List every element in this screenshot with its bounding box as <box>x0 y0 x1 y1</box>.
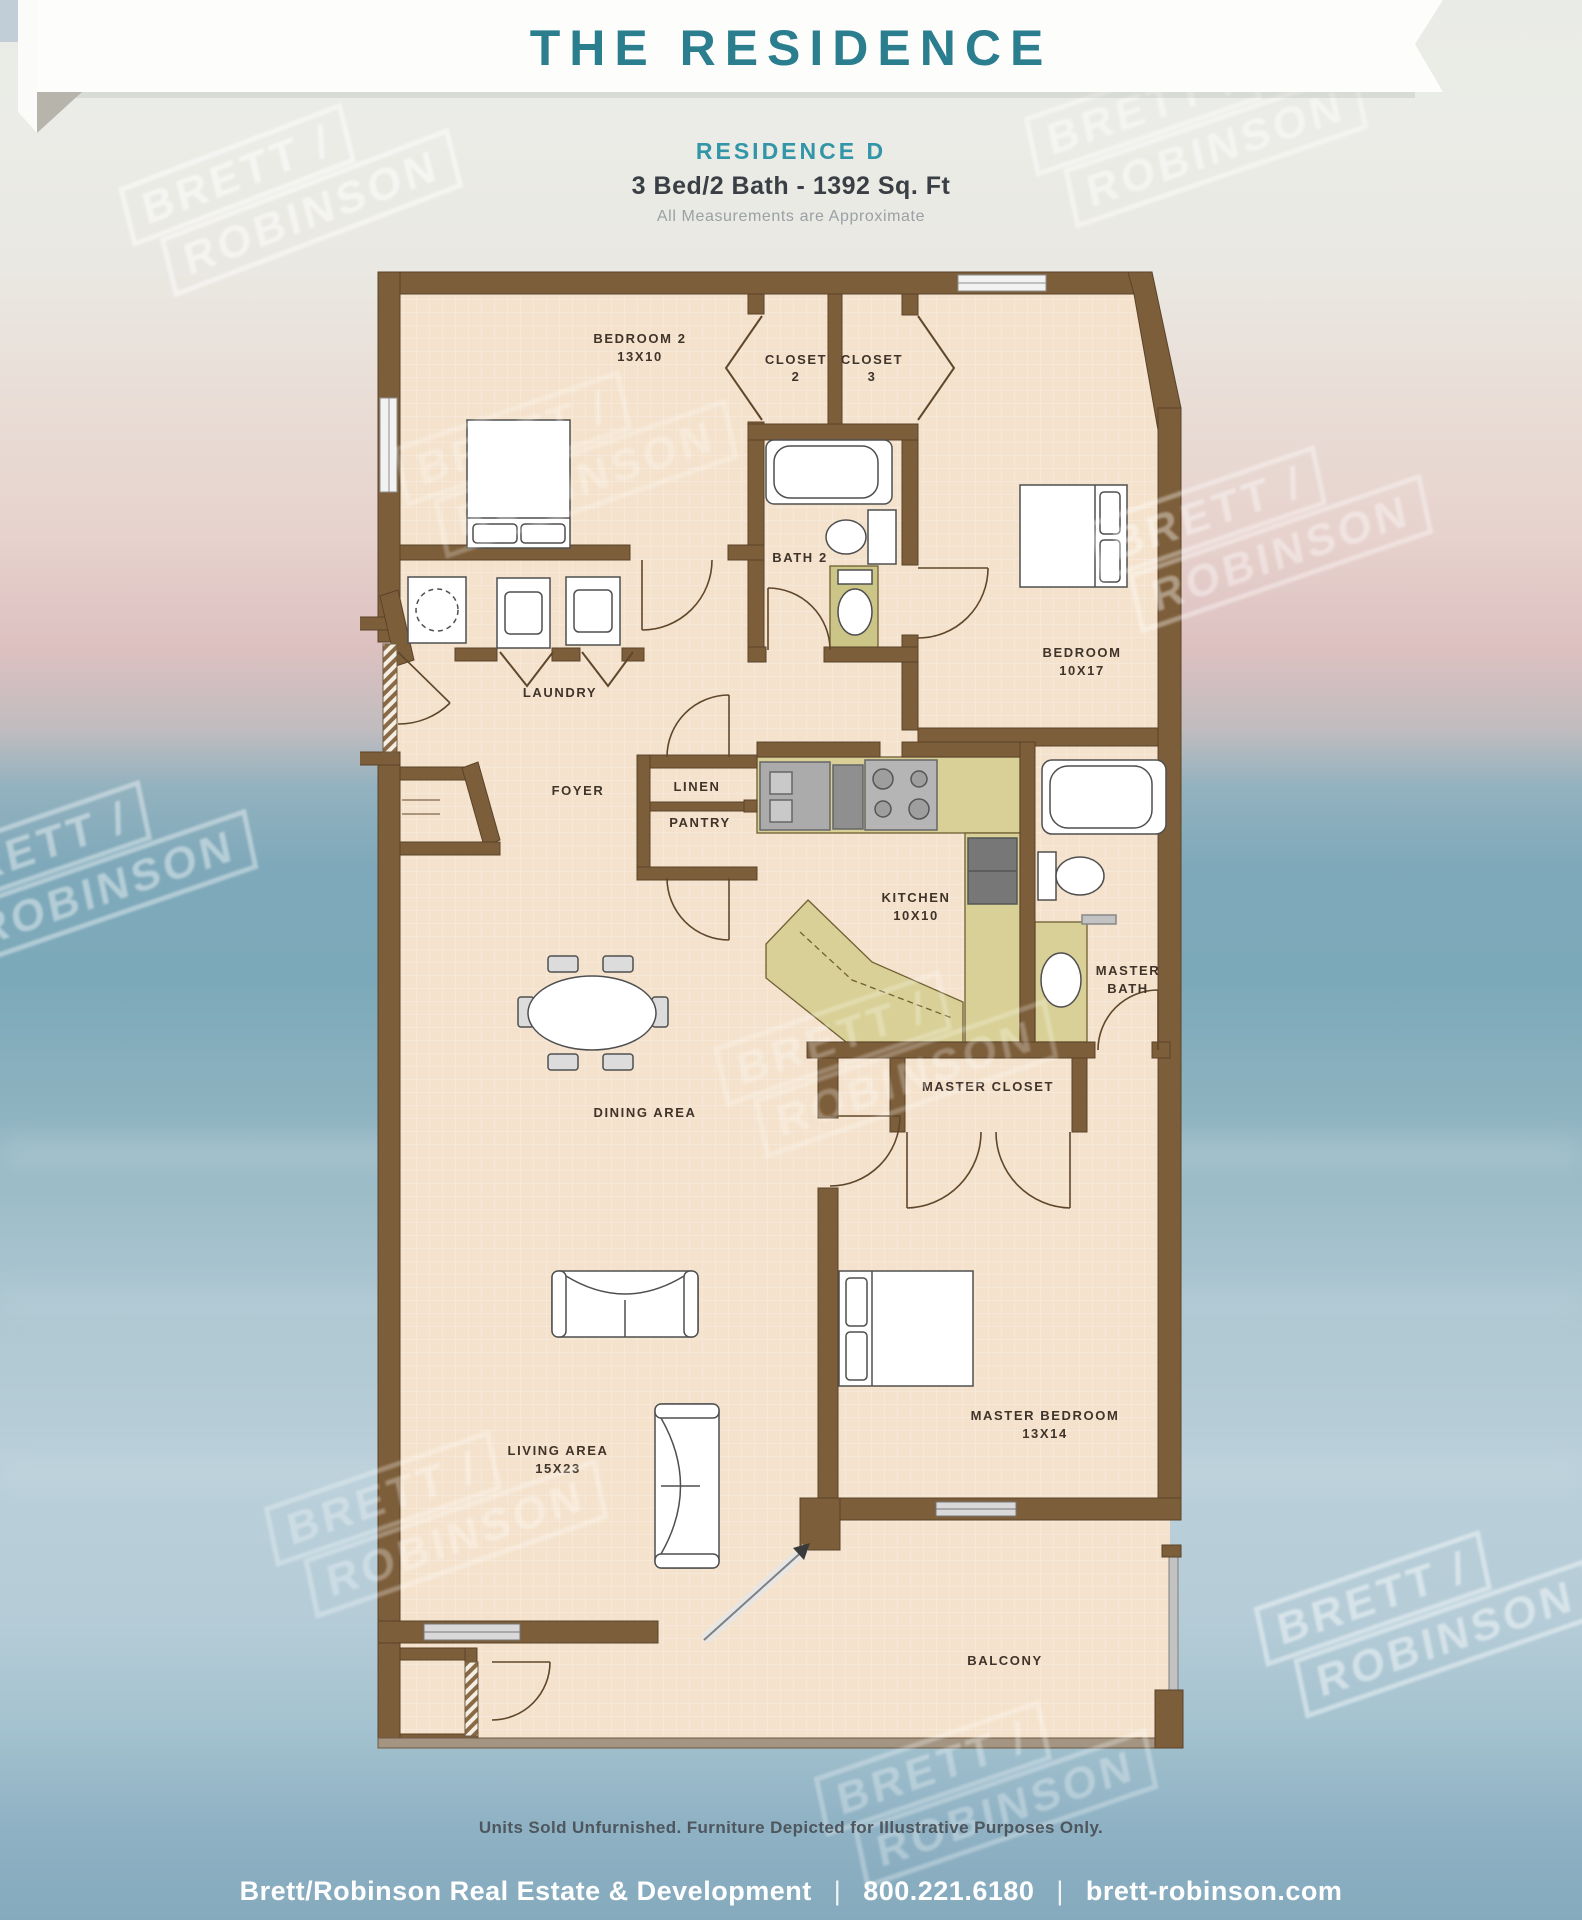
label-balcony: BALCONY <box>967 1653 1042 1668</box>
label-linen: LINEN <box>674 779 721 794</box>
website-url: brett-robinson.com <box>1086 1876 1343 1906</box>
label-bedroom2-dims: 13X10 <box>617 349 663 364</box>
label-laundry: LAUNDRY <box>523 685 597 700</box>
label-bath2: BATH 2 <box>772 550 828 565</box>
contact-bar: Brett/Robinson Real Estate & Development… <box>0 1876 1582 1907</box>
label-master-bedroom: MASTER BEDROOM <box>971 1408 1120 1423</box>
label-closet2-num: 2 <box>792 369 801 384</box>
phone-number: 800.221.6180 <box>863 1876 1034 1906</box>
label-bedroom2: BEDROOM 2 <box>593 331 686 346</box>
residence-specs: 3 Bed/2 Bath - 1392 Sq. Ft <box>0 172 1582 201</box>
brett-robinson-watermark: BRETT /ROBINSON <box>1251 1529 1577 1713</box>
separator: | <box>834 1876 842 1906</box>
label-bedroom-dims: 10X17 <box>1059 663 1105 678</box>
measurements-note: All Measurements are Approximate <box>0 208 1582 226</box>
page-title: THE RESIDENCE <box>0 0 1582 92</box>
label-master-bedroom-dims: 13X14 <box>1022 1426 1068 1441</box>
loveseat <box>655 1404 719 1568</box>
laundry-appliances <box>408 577 620 648</box>
sofa <box>552 1271 698 1337</box>
label-living: LIVING AREA <box>508 1443 609 1458</box>
title-ribbon-fold <box>37 92 82 133</box>
bedroom-bed <box>1020 485 1127 587</box>
banner-shadow <box>37 92 1415 98</box>
label-master-bath2: BATH <box>1107 981 1149 996</box>
label-master-bath: MASTER <box>1096 963 1161 978</box>
floor-plan: BEDROOM 2 13X10 CLOSET 2 CLOSET 3 BATH 2… <box>360 256 1200 1766</box>
disclaimer-text: Units Sold Unfurnished. Furniture Depict… <box>0 1818 1582 1838</box>
label-closet3-num: 3 <box>868 369 877 384</box>
label-closet3: CLOSET <box>841 352 903 367</box>
label-kitchen: KITCHEN <box>882 890 951 905</box>
label-dining: DINING AREA <box>593 1105 696 1120</box>
label-closet2: CLOSET <box>765 352 827 367</box>
label-living-dims: 15X23 <box>535 1461 581 1476</box>
flyer-page: BEDROOM 2 13X10 CLOSET 2 CLOSET 3 BATH 2… <box>0 0 1582 1920</box>
label-pantry: PANTRY <box>669 815 731 830</box>
master-bed <box>839 1271 973 1386</box>
label-foyer: FOYER <box>552 783 605 798</box>
bedroom2-bed <box>467 420 570 548</box>
company-name: Brett/Robinson Real Estate & Development <box>240 1876 812 1906</box>
label-bedroom: BEDROOM <box>1042 645 1121 660</box>
label-kitchen-dims: 10X10 <box>893 908 939 923</box>
residence-name: RESIDENCE D <box>0 138 1582 165</box>
brett-robinson-watermark: BRETT /ROBINSON <box>0 779 237 963</box>
label-master-closet: MASTER CLOSET <box>922 1079 1054 1094</box>
separator: | <box>1056 1876 1064 1906</box>
